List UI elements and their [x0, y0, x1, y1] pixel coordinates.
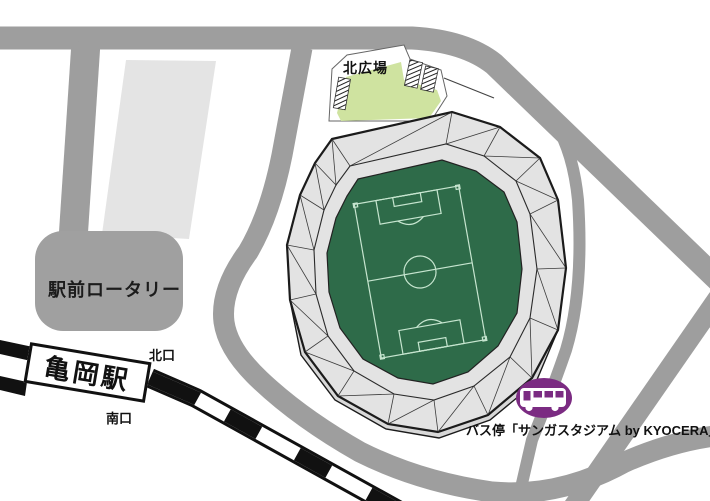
station-north-exit-label: 北口	[149, 345, 175, 364]
access-map: 北広場 駅前ロータリー 亀岡駅 北口 南口 バス停「サンガスタジアム by KY…	[0, 0, 710, 501]
bus-stop-icon	[516, 378, 572, 418]
plaza-label: 北広場	[343, 58, 388, 78]
plaza-edge-line	[444, 78, 494, 98]
rotary-label: 駅前ロータリー	[48, 276, 181, 302]
station-south-exit-label: 南口	[106, 408, 132, 427]
bus-stop-label: バス停「サンガスタジアム by KYOCERA」	[466, 420, 710, 439]
road-left-vertical	[73, 42, 86, 240]
road-diagonal-right	[573, 298, 710, 501]
parking-area	[102, 60, 216, 239]
